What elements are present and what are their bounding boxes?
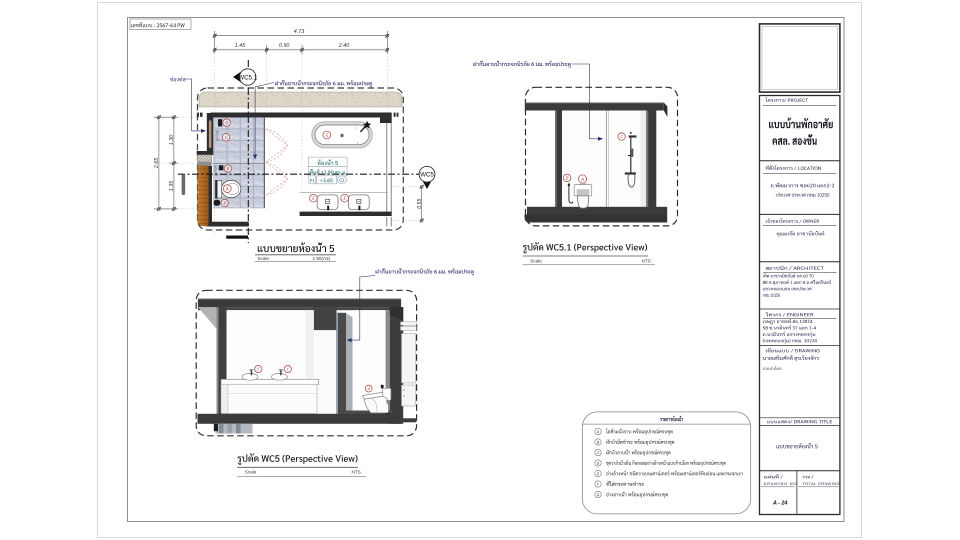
svg-text:2.65: 2.65 [154, 157, 160, 169]
svg-text:WC5.1: WC5.1 [238, 74, 257, 81]
svg-text:DRAWING NO.: DRAWING NO. [764, 481, 799, 486]
svg-text:A - 24: A - 24 [772, 500, 787, 506]
svg-text:TOTAL DRAWING: TOTAL DRAWING [802, 481, 839, 486]
svg-text:4.73: 4.73 [294, 29, 305, 35]
svg-text:1.45: 1.45 [235, 43, 246, 49]
svg-text:NTS.: NTS. [352, 470, 362, 475]
svg-text:Scale: Scale [258, 256, 270, 261]
svg-text:Scale: Scale [530, 258, 542, 263]
svg-text:0.90: 0.90 [279, 43, 290, 49]
svg-text:WC5: WC5 [420, 172, 434, 179]
svg-text:0.55: 0.55 [417, 199, 423, 209]
svg-text:1.30: 1.30 [169, 135, 175, 146]
svg-text:Scale: Scale [245, 470, 257, 475]
svg-text:NTS.: NTS. [642, 258, 652, 263]
svg-text:1:50(A3): 1:50(A3) [313, 256, 331, 261]
svg-text:2.40: 2.40 [338, 43, 350, 49]
svg-text:1.35: 1.35 [169, 180, 175, 191]
